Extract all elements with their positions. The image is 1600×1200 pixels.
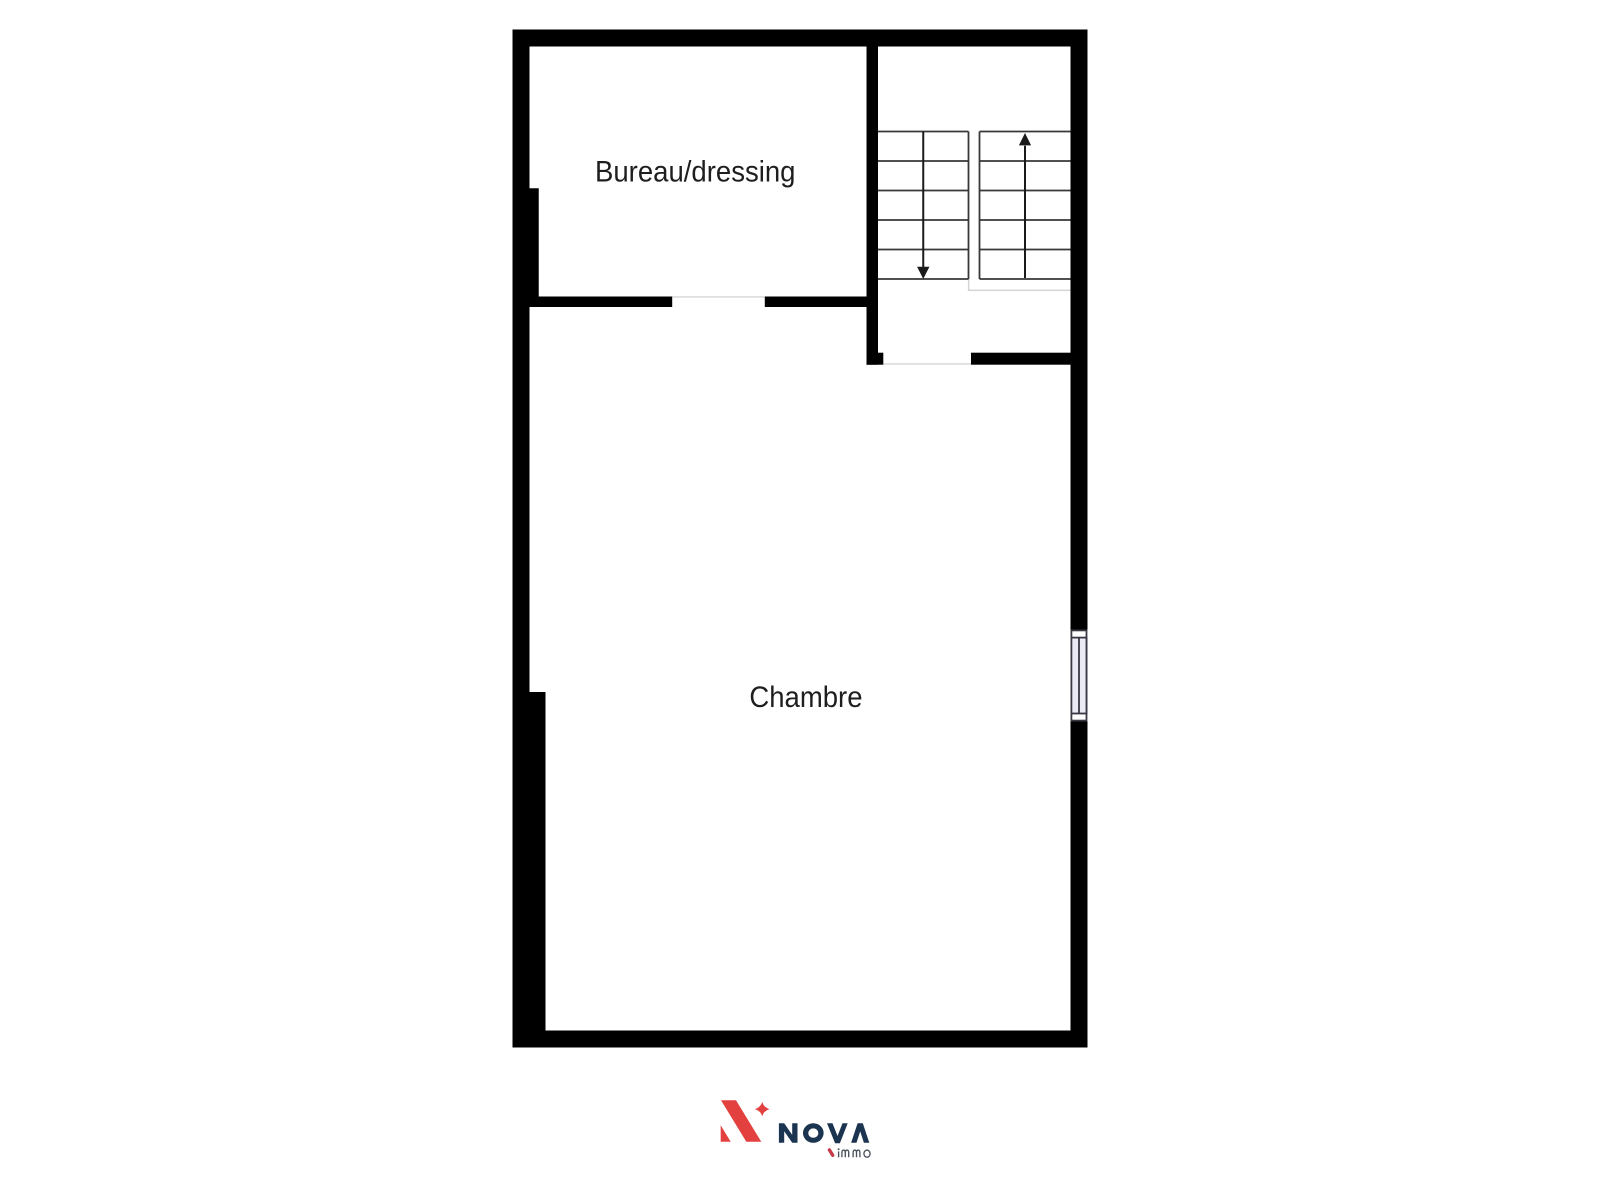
svg-text:Bureau/dressing: Bureau/dressing (595, 156, 796, 189)
svg-text:Chambre: Chambre (749, 681, 862, 714)
